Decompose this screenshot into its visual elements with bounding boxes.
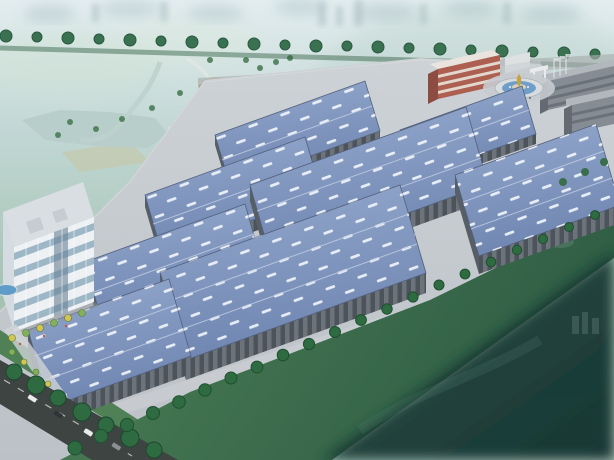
office-glass-stripe <box>54 227 68 317</box>
admin-side-face <box>428 69 438 104</box>
pool <box>0 285 17 296</box>
rendering-canvas <box>0 0 614 460</box>
industrial-park-rendering: Aerial bird's-eye 3D architectural rende… <box>0 0 614 460</box>
